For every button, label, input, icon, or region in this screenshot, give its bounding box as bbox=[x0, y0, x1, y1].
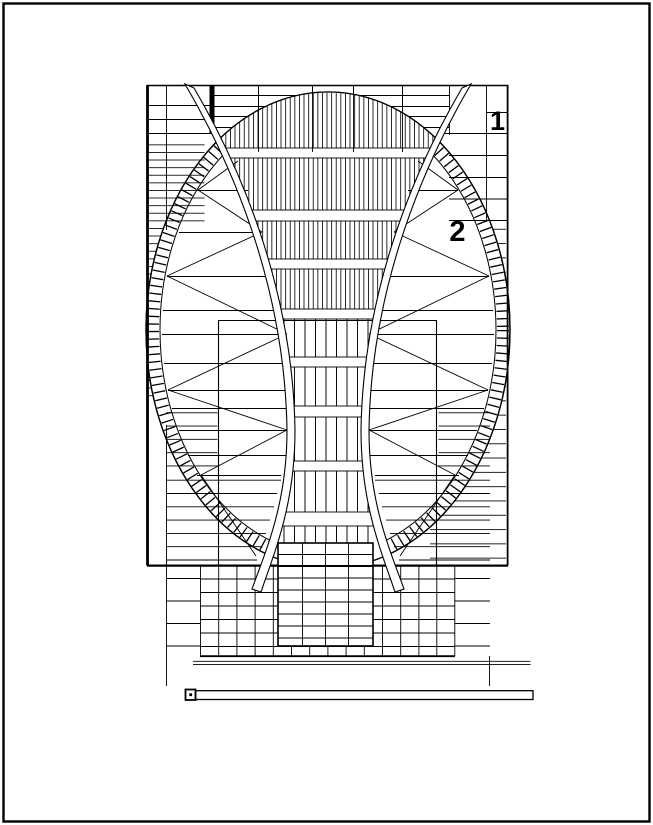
drawing-sheet: 1 2 bbox=[0, 0, 653, 825]
central-shaft-grid bbox=[278, 543, 373, 646]
plan-root: 1 2 bbox=[0, 0, 653, 825]
zone-label-2: 2 bbox=[449, 216, 465, 248]
scale-bar-origin-dot bbox=[189, 693, 192, 696]
cad-plan-canvas: 1 2 bbox=[0, 0, 653, 825]
lower-margin-rows bbox=[166, 400, 218, 470]
zone-label-1: 1 bbox=[490, 106, 505, 136]
